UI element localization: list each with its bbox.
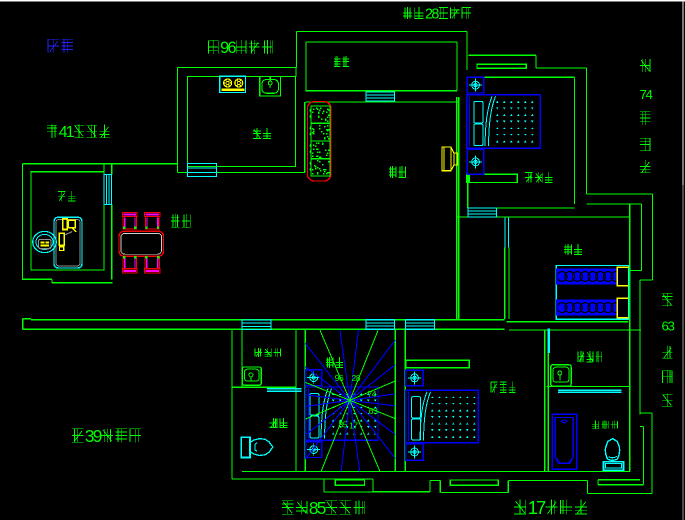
svg-text:28: 28 [352, 373, 361, 383]
svg-text:3: 3 [668, 318, 675, 333]
svg-text:85: 85 [339, 420, 348, 430]
svg-text:5: 5 [317, 498, 327, 518]
svg-text:17: 17 [349, 421, 358, 431]
svg-text:7: 7 [536, 497, 546, 518]
svg-text:74: 74 [368, 389, 377, 399]
svg-text:6: 6 [228, 39, 237, 57]
svg-text:4: 4 [646, 87, 653, 102]
svg-text:63: 63 [369, 406, 378, 416]
svg-text:1: 1 [66, 124, 75, 141]
svg-text:96: 96 [335, 373, 344, 383]
svg-text:9: 9 [93, 426, 103, 446]
svg-text:8: 8 [431, 6, 439, 22]
